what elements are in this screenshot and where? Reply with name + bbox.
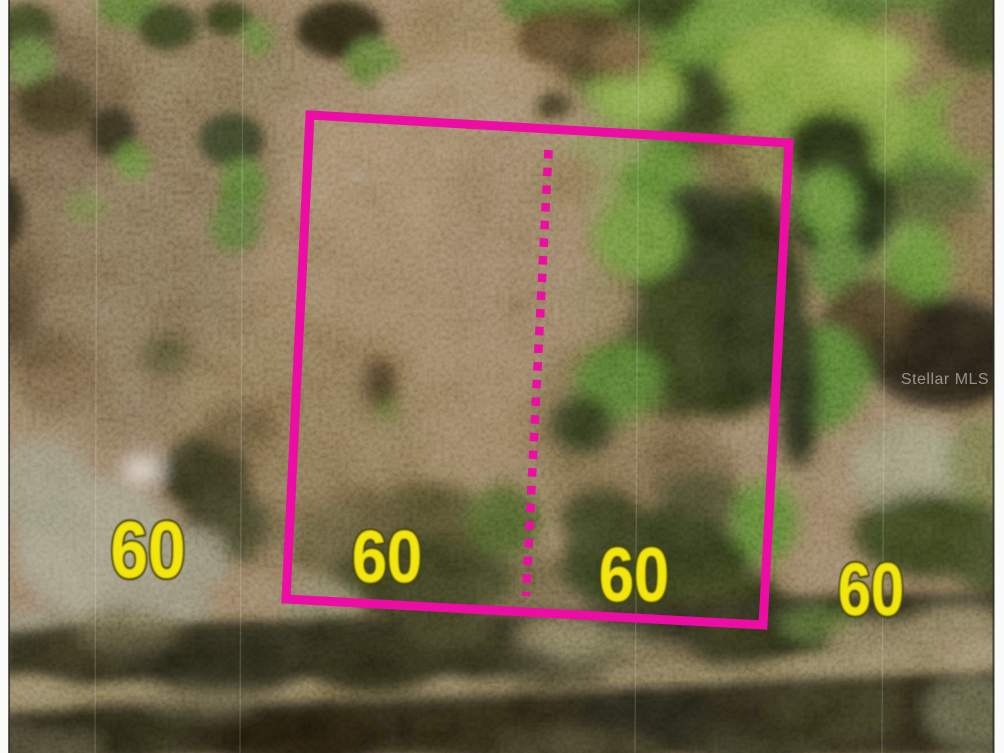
svg-text:60: 60 xyxy=(838,548,904,631)
svg-text:60: 60 xyxy=(111,505,186,594)
svg-text:Stellar MLS: Stellar MLS xyxy=(901,371,989,388)
svg-text:60: 60 xyxy=(599,533,669,618)
svg-text:60: 60 xyxy=(352,517,422,598)
